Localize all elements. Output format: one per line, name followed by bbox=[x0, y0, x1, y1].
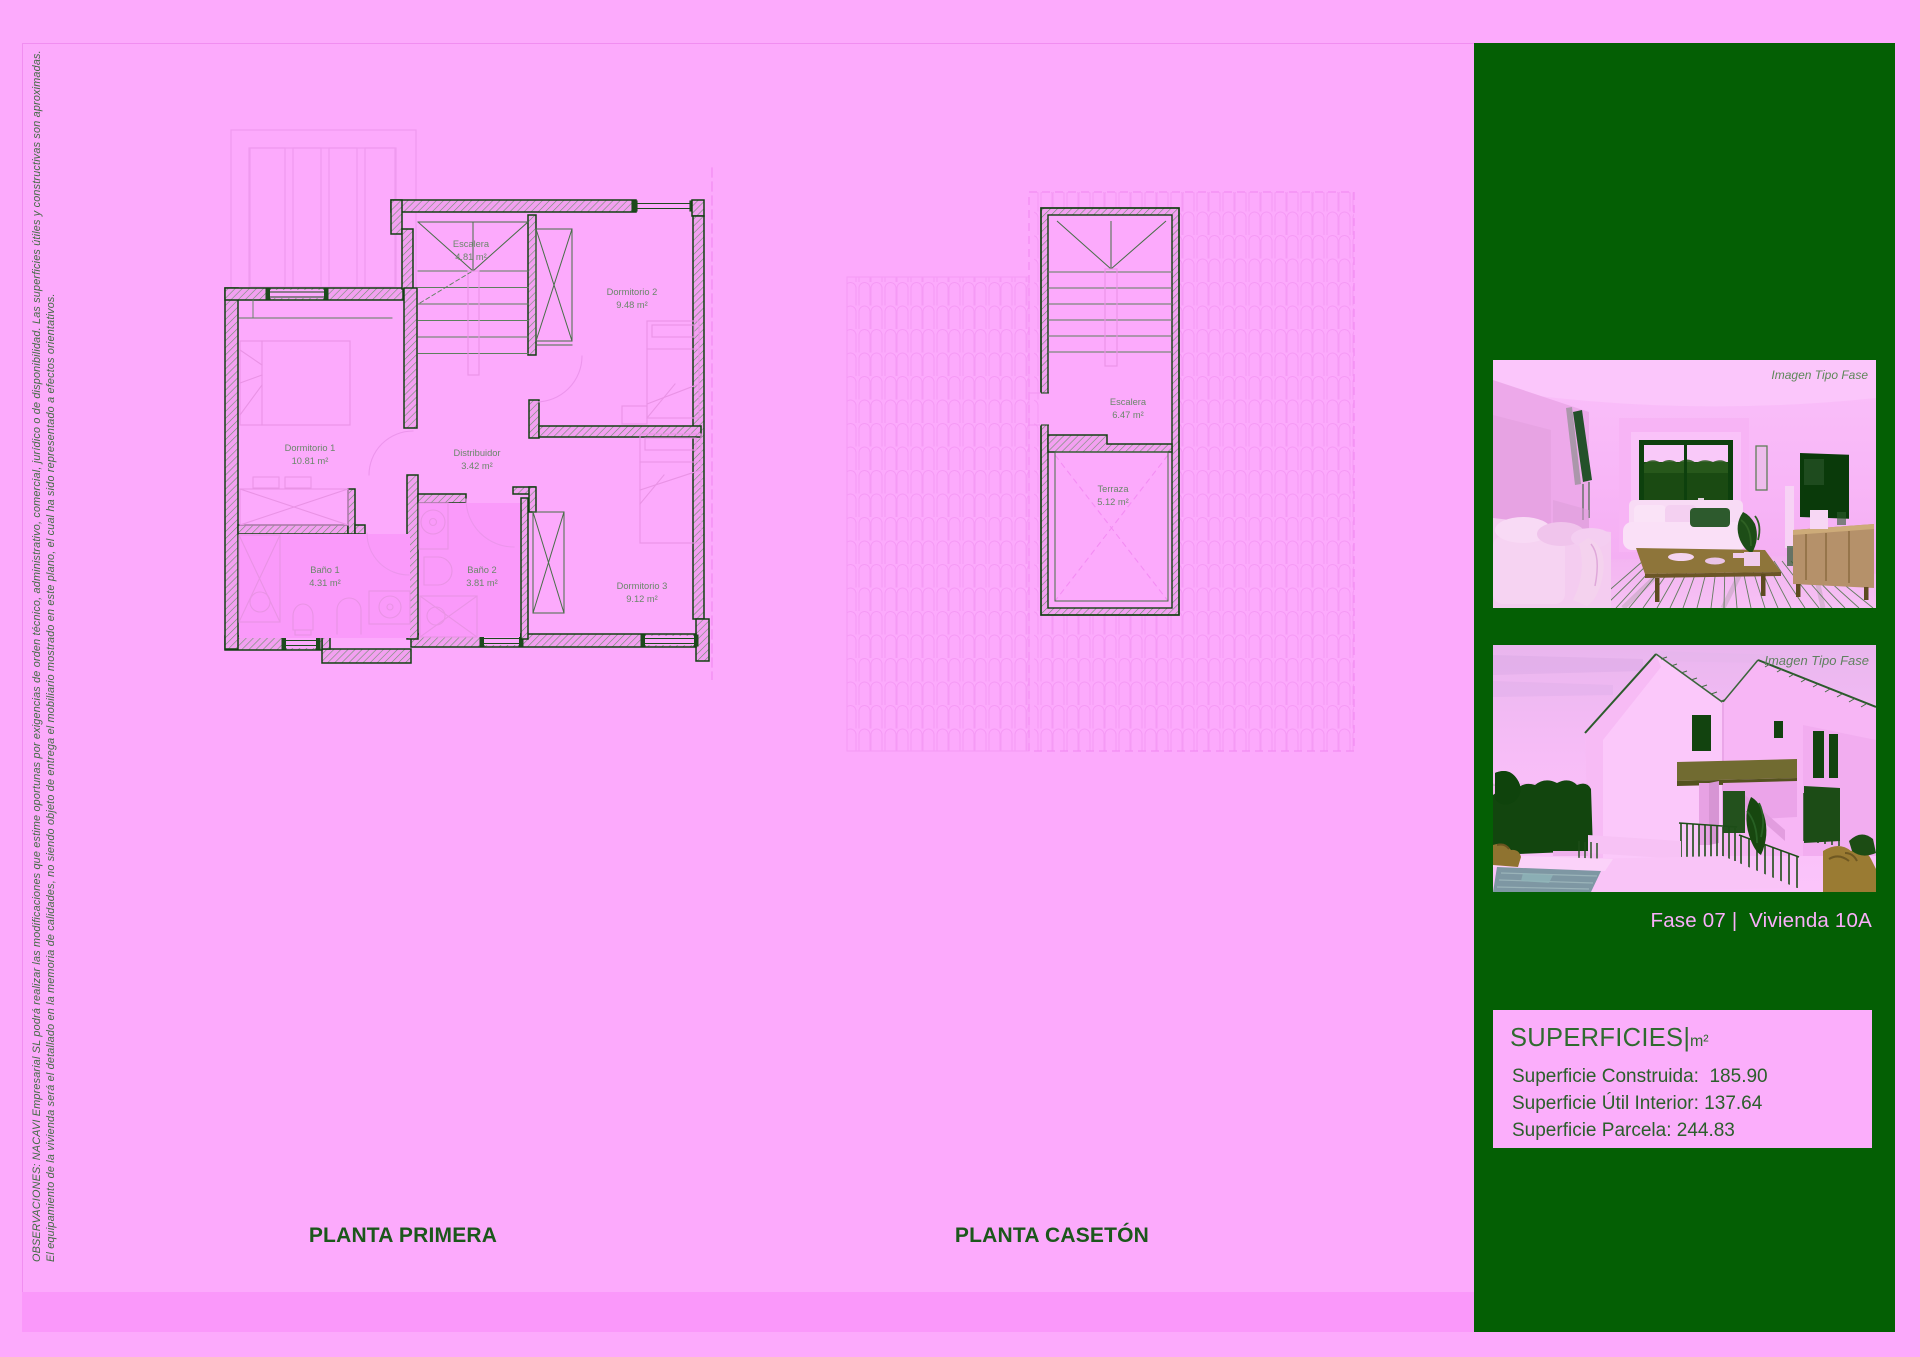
svg-text:Dormitorio 1: Dormitorio 1 bbox=[285, 443, 336, 453]
svg-text:3.42 m²: 3.42 m² bbox=[461, 461, 493, 471]
svg-text:Baño 2: Baño 2 bbox=[467, 565, 496, 575]
svg-text:4.81 m²: 4.81 m² bbox=[455, 252, 487, 262]
svg-text:Dormitorio 2: Dormitorio 2 bbox=[607, 287, 658, 297]
svg-text:9.48 m²: 9.48 m² bbox=[616, 300, 648, 310]
svg-text:Distribuidor: Distribuidor bbox=[453, 448, 500, 458]
svg-text:Escalera: Escalera bbox=[453, 239, 490, 249]
svg-text:Baño 1: Baño 1 bbox=[310, 565, 339, 575]
svg-text:Imagen Tipo Fase: Imagen Tipo Fase bbox=[1771, 368, 1868, 382]
svg-text:Escalera: Escalera bbox=[1110, 397, 1147, 407]
svg-text:3.81 m²: 3.81 m² bbox=[466, 578, 498, 588]
svg-text:9.12 m²: 9.12 m² bbox=[626, 594, 658, 604]
svg-text:Terraza: Terraza bbox=[1098, 484, 1130, 494]
svg-text:4.31 m²: 4.31 m² bbox=[309, 578, 341, 588]
svg-text:6.47 m²: 6.47 m² bbox=[1112, 410, 1144, 420]
svg-text:10.81 m²: 10.81 m² bbox=[292, 456, 329, 466]
svg-text:Imagen Tipo Fase: Imagen Tipo Fase bbox=[1764, 653, 1869, 668]
svg-text:Dormitorio 3: Dormitorio 3 bbox=[617, 581, 668, 591]
svg-text:5.12 m²: 5.12 m² bbox=[1097, 497, 1129, 507]
